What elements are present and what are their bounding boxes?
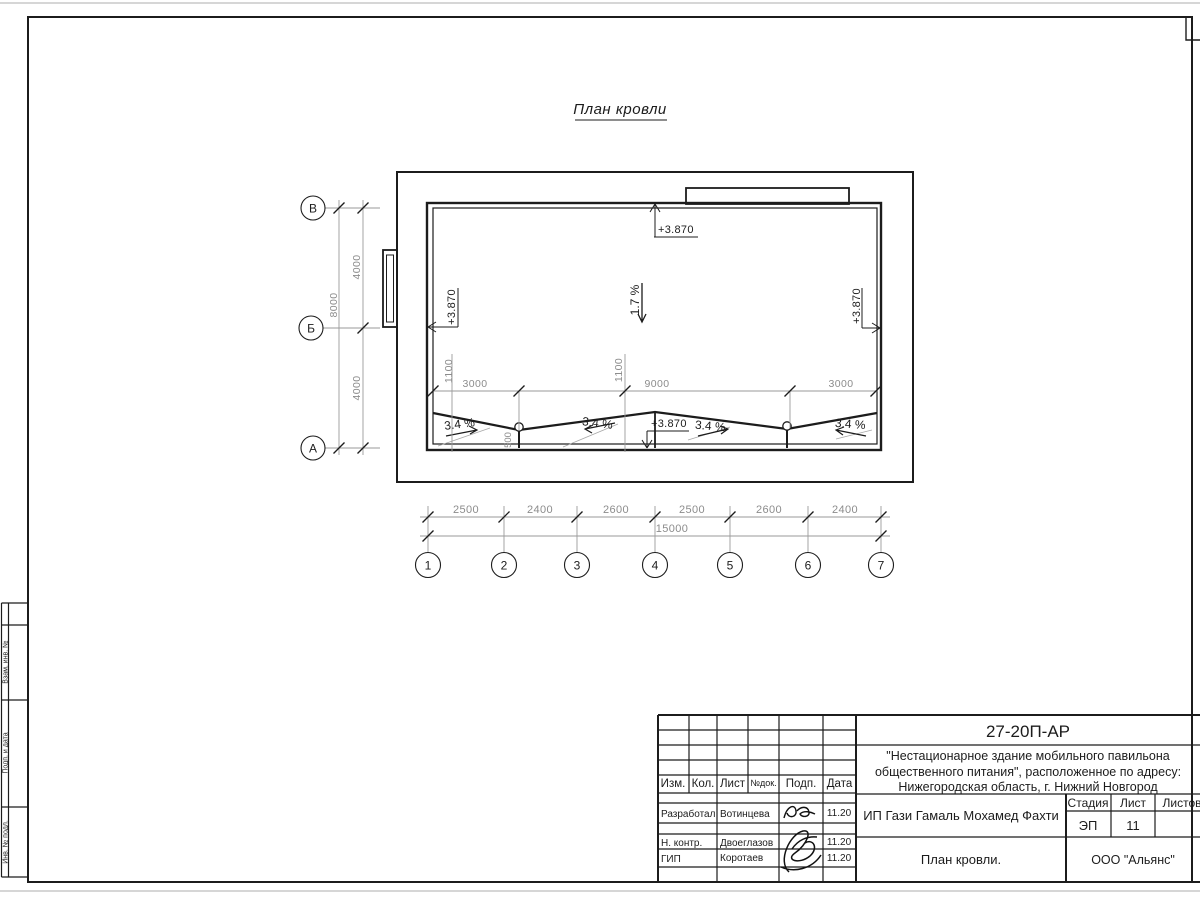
col-kol: Кол.	[692, 778, 715, 790]
left-total-8000: 8000	[328, 293, 340, 318]
roof-dim-3000-left: 3000	[463, 378, 488, 390]
roof-offset-1100-b: 1100	[613, 358, 625, 382]
roof-dim-9000: 9000	[645, 378, 670, 390]
left-axis-chain: 8000 4000 4000 В Б А	[299, 196, 380, 460]
bottom-total-15000: 15000	[656, 523, 689, 535]
col-ndok: №док.	[750, 778, 776, 788]
page-title: План кровли	[573, 101, 667, 118]
bottom-seg-5: 2600	[756, 504, 782, 516]
axis-label-v: В	[309, 202, 317, 216]
side-label-inv: Инв. № подл.	[2, 820, 9, 864]
sheets-label: Листов	[1163, 796, 1200, 810]
sheet-label: Лист	[1120, 796, 1147, 810]
doc-code: 27-20П-АР	[986, 722, 1070, 741]
col-podp: Подп.	[786, 778, 817, 790]
side-label-podp: Подп. и дата	[2, 732, 9, 773]
left-canopy-rect	[383, 250, 397, 327]
row3-name: Коротаев	[720, 853, 763, 864]
parapet-inner-rect	[433, 208, 877, 444]
bottom-seg-6: 2400	[832, 504, 858, 516]
roof-offset-1100-a: 1100	[443, 359, 455, 383]
col-list: Лист	[720, 778, 746, 790]
row1-date: 11.20	[827, 808, 852, 819]
valley-slope-label-4: 3.4 %	[834, 416, 866, 432]
axis-num-7: 7	[878, 559, 885, 573]
axis-num-3: 3	[574, 559, 581, 573]
top-canopy-rect	[686, 188, 849, 204]
axis-num-1: 1	[425, 559, 432, 573]
title-block: 27-20П-АР "Нестационарное здание мобильн…	[658, 715, 1200, 882]
client-name: ИП Гази Гамаль Мохамед Фахти	[863, 808, 1059, 823]
left-margin-labels: Взам. инв. № Подп. и дата Инв. № подл.	[2, 640, 9, 863]
bottom-axis-chain: 2500 2400 2600 2500 2600 2400 15000 1 2 …	[416, 504, 894, 578]
axis-label-a: А	[309, 442, 317, 456]
row2-name: Двоеглазов	[720, 838, 773, 849]
bottom-seg-4: 2500	[679, 504, 705, 516]
project-name-line3: Нижегородская область, г. Нижний Новгоро…	[898, 780, 1158, 794]
valley-slope-label-1: 3.4 %	[443, 415, 475, 433]
company-name: ООО "Альянс"	[1091, 853, 1175, 867]
axis-num-2: 2	[501, 559, 508, 573]
bottom-seg-3: 2600	[603, 504, 629, 516]
roof-plan-sheet-svg: Взам. инв. № Подп. и дата Инв. № подл. П…	[0, 0, 1200, 900]
axis-label-b: Б	[307, 322, 315, 336]
row2-date: 11.20	[827, 837, 852, 848]
side-label-vzam: Взам. инв. №	[2, 640, 9, 683]
building-outline	[383, 172, 913, 482]
elevation-left: +3.870	[446, 289, 458, 325]
col-data: Дата	[827, 778, 853, 790]
axis-num-5: 5	[727, 559, 734, 573]
main-slope-label: 1.7 %	[628, 284, 642, 315]
left-seg-4000-b: 4000	[351, 376, 363, 401]
drawing-sheet: Взам. инв. № Подп. и дата Инв. № подл. П…	[0, 0, 1200, 900]
row3-role: ГИП	[661, 854, 681, 865]
signature-2	[781, 831, 821, 872]
drawing-title: План кровли.	[921, 852, 1001, 867]
project-name-line2: общественного питания", расположенное по…	[875, 765, 1181, 779]
elevation-top: +3.870	[658, 224, 694, 236]
left-canopy-inner-rect	[387, 255, 394, 322]
roof-dim-3000-right: 3000	[829, 378, 854, 390]
bottom-seg-2: 2400	[527, 504, 553, 516]
row2-role: Н. контр.	[661, 838, 702, 849]
stage-value: ЭП	[1079, 818, 1098, 833]
axis-num-4: 4	[652, 559, 659, 573]
row1-name: Вотинцева	[720, 809, 770, 820]
bottom-seg-1: 2500	[453, 504, 479, 516]
valley-slope-label-3: 3.4 %	[694, 418, 726, 435]
col-izm: Изм.	[661, 778, 686, 790]
elevation-bottom: +3.870	[651, 418, 687, 430]
elevation-right: +3.870	[851, 288, 863, 324]
row3-date: 11.20	[827, 853, 852, 864]
stage-label: Стадия	[1068, 796, 1109, 810]
drain-dim-500: 500	[503, 432, 514, 448]
axis-num-6: 6	[805, 559, 812, 573]
row1-role: Разработал	[661, 808, 716, 820]
sheet-number: 11	[1126, 818, 1140, 833]
signature-1	[784, 807, 815, 818]
left-seg-4000-a: 4000	[351, 255, 363, 280]
project-name-line1: "Нестационарное здание мобильного павиль…	[886, 749, 1169, 763]
bottom-dim-ticks	[423, 512, 887, 542]
